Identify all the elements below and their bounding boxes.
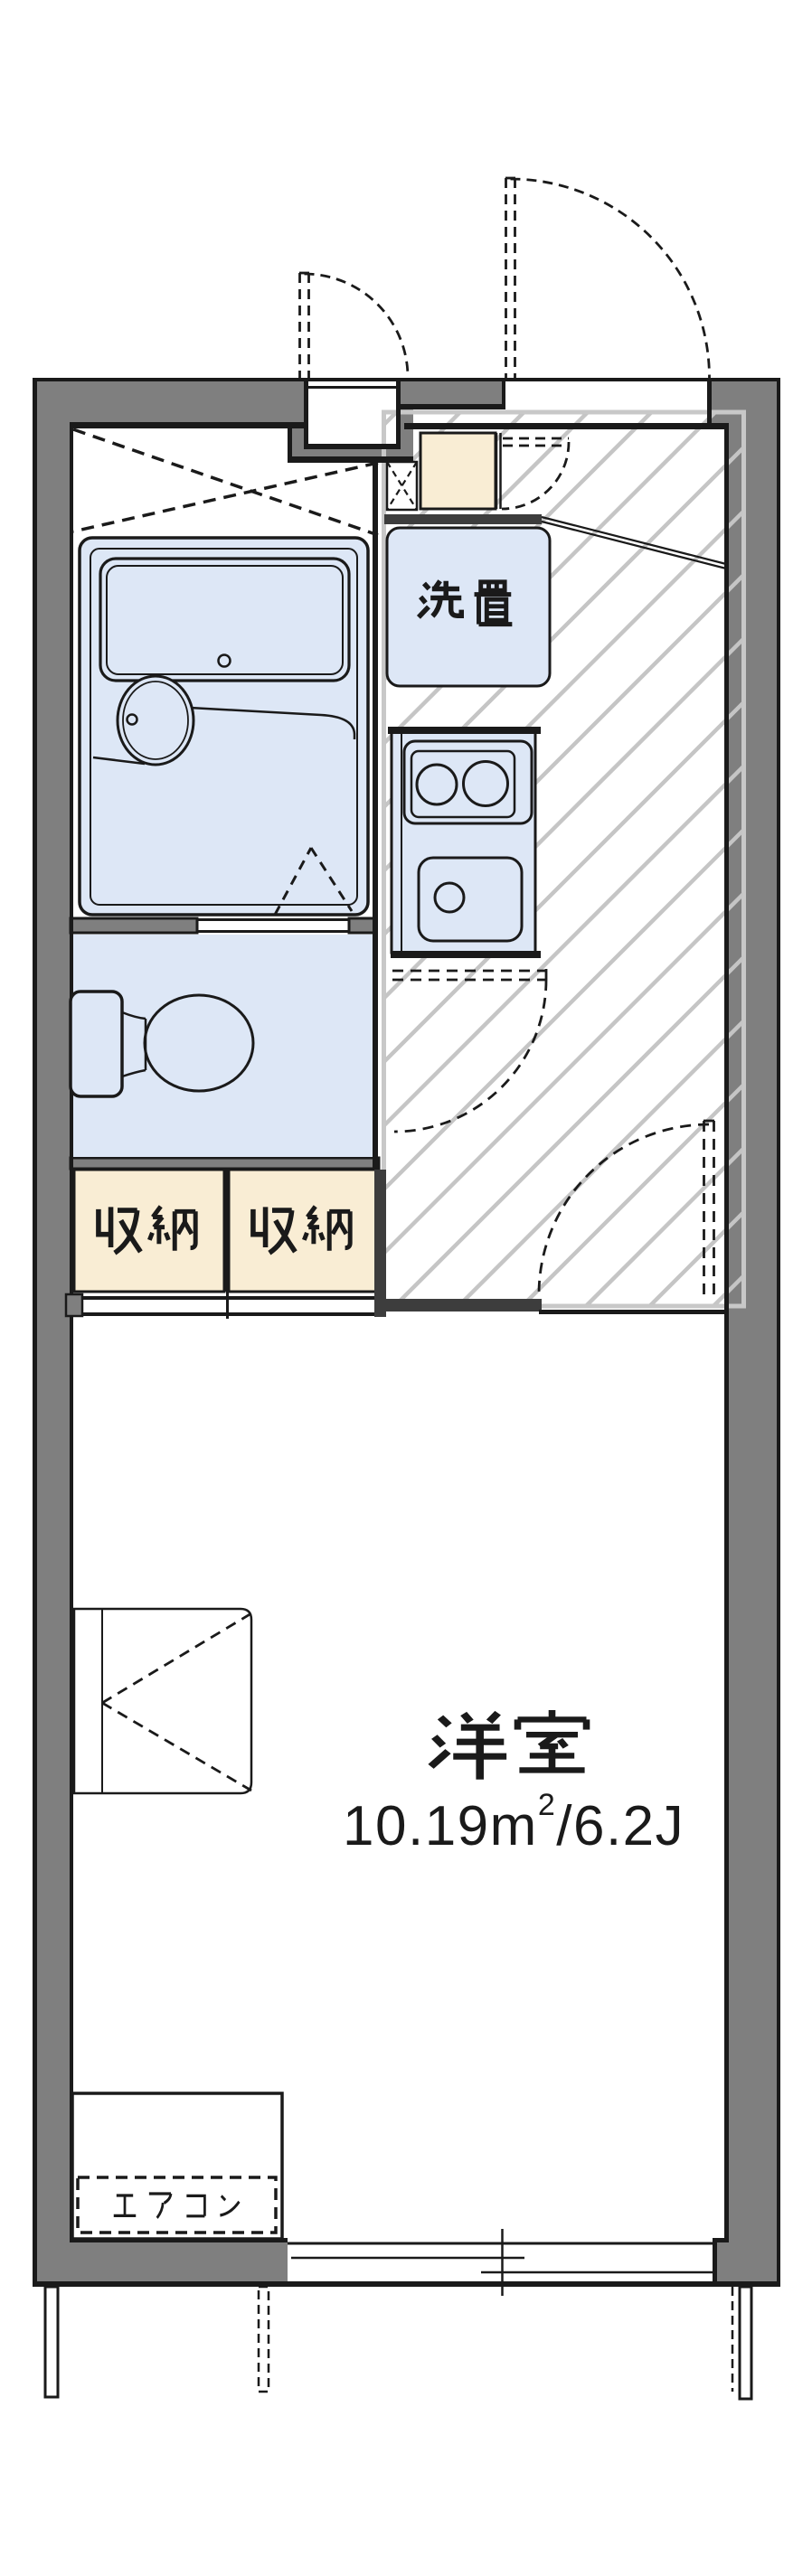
svg-text:10.19m2/6.2J: 10.19m2/6.2J <box>343 1788 685 1857</box>
